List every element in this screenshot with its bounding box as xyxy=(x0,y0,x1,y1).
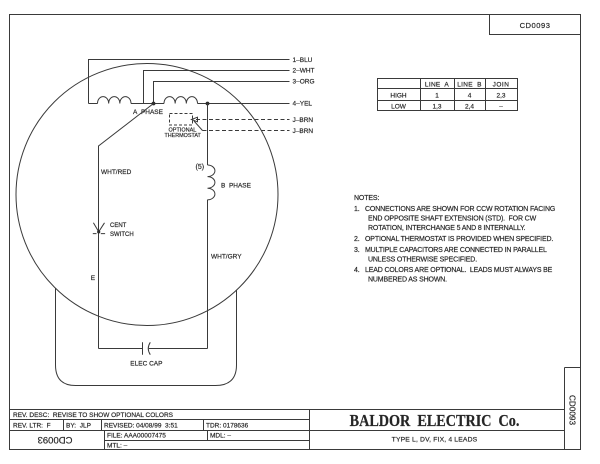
svg-text:CD0093: CD0093 xyxy=(38,434,73,445)
svg-text:WHT/RED: WHT/RED xyxy=(101,169,132,176)
svg-text:4.: 4. xyxy=(354,267,360,274)
svg-text:MULTIPLE CAPACITORS ARE CONNEC: MULTIPLE CAPACITORS ARE CONNECTED IN PAR… xyxy=(365,247,547,254)
svg-text:J–BRN: J–BRN xyxy=(293,117,314,124)
svg-text:JOIN: JOIN xyxy=(493,82,510,89)
svg-text:CONNECTIONS ARE SHOWN FOR CCW: CONNECTIONS ARE SHOWN FOR CCW ROTATION F… xyxy=(365,206,555,213)
svg-text:2,4: 2,4 xyxy=(465,104,474,111)
svg-text:TYPE L, DV, FIX, 4 LEADS: TYPE L, DV, FIX, 4 LEADS xyxy=(392,437,478,444)
svg-text:CD0093: CD0093 xyxy=(567,395,576,425)
svg-text:J–BRN: J–BRN xyxy=(293,128,314,135)
svg-text:LEAD COLORS ARE OPTIONAL. LEA: LEAD COLORS ARE OPTIONAL. LEADS MUST ALW… xyxy=(365,267,553,274)
svg-text:MDL: –: MDL: – xyxy=(210,433,231,440)
svg-text:MTL: –: MTL: – xyxy=(107,443,128,450)
svg-text:4: 4 xyxy=(468,93,472,100)
svg-text:–: – xyxy=(499,104,503,111)
svg-text:1.: 1. xyxy=(354,206,360,213)
svg-text:END OPPOSITE SHAFT EXTENSION (: END OPPOSITE SHAFT EXTENSION (STD). FOR … xyxy=(368,216,537,223)
svg-text:WHT/GRY: WHT/GRY xyxy=(211,254,242,261)
svg-text:1,3: 1,3 xyxy=(432,104,441,111)
svg-text:THERMOSTAT: THERMOSTAT xyxy=(165,133,202,139)
svg-text:E: E xyxy=(91,275,96,282)
svg-text:LOW: LOW xyxy=(391,104,407,111)
svg-text:UNLESS OTHERWISE SPECIFIED.: UNLESS OTHERWISE SPECIFIED. xyxy=(368,257,477,264)
svg-text:NOTES:: NOTES: xyxy=(354,195,379,202)
svg-text:REVISED: 04/08/99 3:51: REVISED: 04/08/99 3:51 xyxy=(104,423,178,430)
svg-text:(5): (5) xyxy=(196,164,205,171)
svg-text:LINE A: LINE A xyxy=(425,82,450,89)
svg-text:FILE: AAA00007475: FILE: AAA00007475 xyxy=(107,433,166,440)
svg-text:BALDOR ELECTRIC Co.: BALDOR ELECTRIC Co. xyxy=(350,412,520,430)
svg-text:HIGH: HIGH xyxy=(390,93,407,100)
svg-text:BY: JLP: BY: JLP xyxy=(66,423,91,430)
svg-text:A PHASE: A PHASE xyxy=(133,109,164,116)
svg-text:CD0093: CD0093 xyxy=(520,21,551,30)
svg-text:LINE B: LINE B xyxy=(457,82,482,89)
svg-text:REV. DESC: REVISE TO SHOW OPT: REV. DESC: REVISE TO SHOW OPTIONAL COLOR… xyxy=(13,412,174,419)
svg-text:1: 1 xyxy=(435,93,439,100)
svg-text:2.: 2. xyxy=(354,236,360,243)
svg-text:TDR: 0178636: TDR: 0178636 xyxy=(206,423,249,430)
svg-text:2–WHT: 2–WHT xyxy=(293,68,315,75)
svg-text:3.: 3. xyxy=(354,247,360,254)
svg-text:ROTATION, INTERCHANGE 5 AND 8: ROTATION, INTERCHANGE 5 AND 8 INTERNALLY… xyxy=(368,225,526,232)
svg-text:3–ORG: 3–ORG xyxy=(293,79,315,86)
svg-text:2,3: 2,3 xyxy=(496,93,505,100)
svg-text:REV. LTR: F: REV. LTR: F xyxy=(13,423,51,430)
svg-text:ELEC CAP: ELEC CAP xyxy=(130,361,162,368)
svg-text:B PHASE: B PHASE xyxy=(221,183,252,190)
svg-text:CENT: CENT xyxy=(110,223,127,229)
svg-text:SWITCH: SWITCH xyxy=(110,232,134,238)
svg-text:OPTIONAL THERMOSTAT IS PROVIDE: OPTIONAL THERMOSTAT IS PROVIDED WHEN SPE… xyxy=(365,236,553,243)
svg-text:1–BLU: 1–BLU xyxy=(293,57,313,64)
svg-text:4–YEL: 4–YEL xyxy=(293,101,313,108)
svg-text:NUMBERED AS SHOWN.: NUMBERED AS SHOWN. xyxy=(368,277,447,284)
